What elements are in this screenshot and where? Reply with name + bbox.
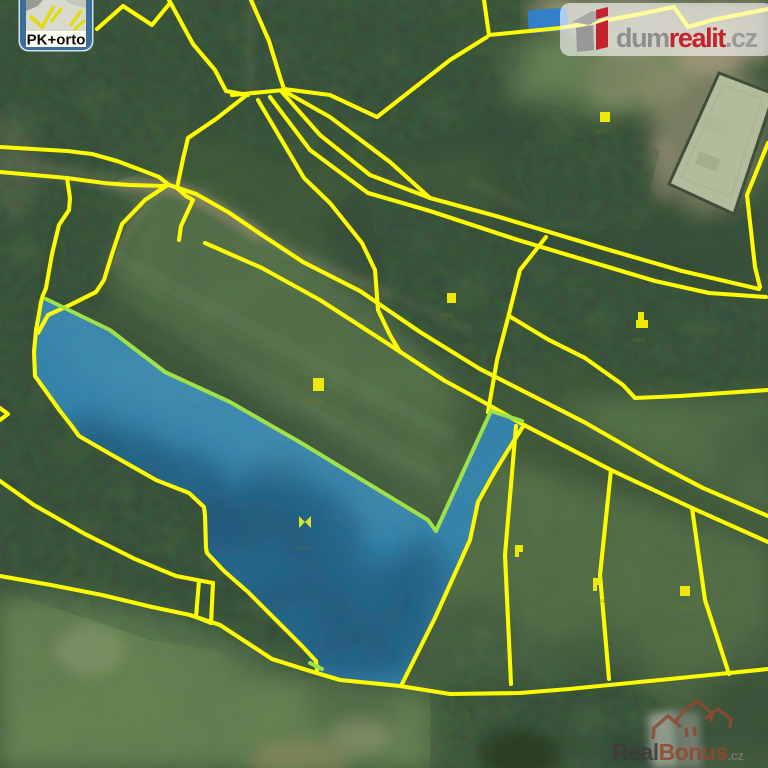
svg-text:299/35: 299/35 <box>674 606 693 612</box>
svg-text:2991: 2991 <box>440 313 454 319</box>
svg-text:299/31: 299/31 <box>304 399 323 405</box>
svg-text:PK+orto: PK+orto <box>27 32 86 49</box>
svg-text:299/33: 299/33 <box>507 566 526 572</box>
svg-text:2994: 2994 <box>296 546 310 552</box>
svg-text:299/34: 299/34 <box>586 599 605 605</box>
svg-text:RealBonus.cz: RealBonus.cz <box>612 739 744 765</box>
svg-text:dumrealit.cz: dumrealit.cz <box>616 23 758 53</box>
svg-text:2993: 2993 <box>632 338 646 344</box>
svg-text:2992: 2992 <box>594 129 608 135</box>
